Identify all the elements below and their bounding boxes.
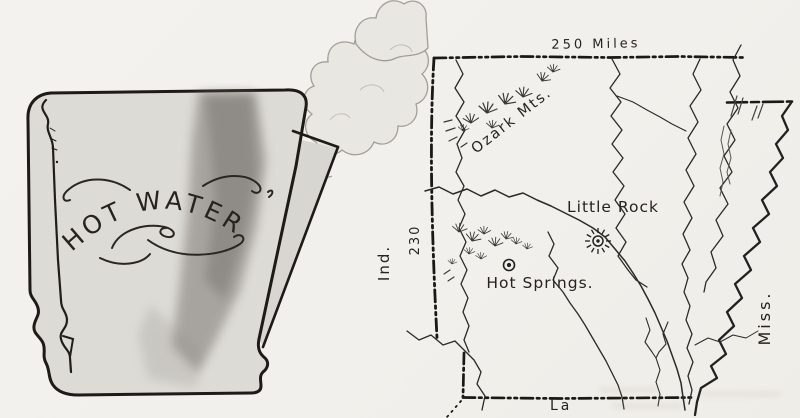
mississippi-label: Miss. [755, 290, 774, 345]
map-border-bottom [463, 398, 692, 399]
hot-springs-label: Hot Springs. [486, 274, 593, 292]
mountain-tuft [547, 64, 560, 72]
mountain-tuft [536, 71, 552, 83]
hot-springs-circle-dot-icon [504, 260, 515, 271]
mountain-tuft [464, 247, 475, 254]
mountain-tuft [448, 259, 457, 265]
west-river [455, 60, 469, 352]
ouachita-mountains-hatching [444, 223, 533, 281]
notch-hatching [731, 96, 763, 120]
white-river [610, 59, 647, 287]
mountain-tuft [489, 237, 503, 246]
mountain-tuft [475, 252, 487, 260]
mountain-tuft [523, 243, 533, 249]
mountain-tuft [497, 92, 517, 107]
map-border-sw-step [463, 353, 464, 397]
scanned-illustration-page: HOT WATER [0, 0, 800, 418]
illustration-canvas: HOT WATER [0, 0, 800, 418]
louisiana-label: La [550, 398, 572, 414]
map-border-sw-dotted [447, 401, 461, 417]
map-labels: 250 Miles Ind. 230 Miss. La Ozark Mts. L… [375, 36, 774, 414]
little-rock-sun-icon [585, 228, 611, 254]
northeast-river [704, 45, 741, 292]
arkansas-map: 250 Miles Ind. 230 Miss. La Ozark Mts. L… [375, 36, 792, 417]
map-border-left [431, 58, 437, 338]
scale-label-top: 250 Miles [551, 36, 640, 53]
mountain-tuft [462, 112, 479, 124]
map-border-ne-notch [727, 102, 792, 103]
mountain-tuft [458, 124, 469, 131]
ozark-mts-label: Ozark Mts. [469, 85, 555, 157]
mississippi-river [695, 103, 791, 415]
indian-territory-label: Ind. [375, 245, 393, 281]
mountain-tuft [478, 226, 491, 235]
ouachita-fork [645, 318, 668, 406]
white-river-branch [617, 96, 686, 131]
mountain-tuft [479, 102, 497, 113]
mountain-tuft [500, 231, 514, 240]
steam-blob-upper [355, 1, 428, 61]
mountain-tuft [465, 231, 482, 243]
mountain-tuft [453, 223, 467, 232]
map-border-top [434, 57, 743, 59]
hot-water-pitcher: HOT WATER [28, 90, 338, 395]
scale-label-left: 230 [408, 225, 423, 256]
mountain-tuft [516, 87, 532, 97]
mountain-tuft [511, 237, 522, 244]
ouachita-river [548, 232, 624, 409]
mountain-rays [444, 270, 454, 281]
little-rock-label: Little Rock [567, 198, 659, 216]
st-francis-river [682, 59, 701, 404]
